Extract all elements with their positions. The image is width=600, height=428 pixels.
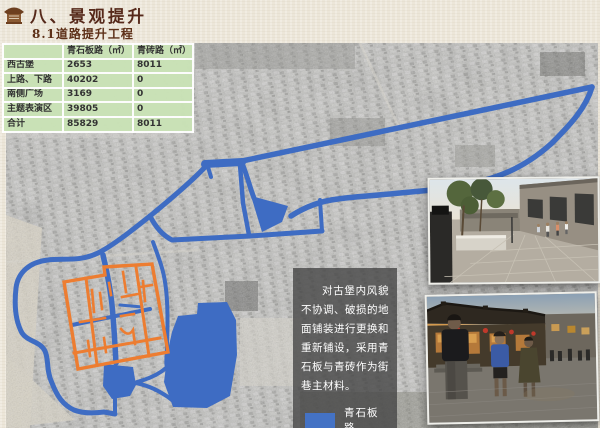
row-label: 合计: [3, 117, 63, 132]
cell-stone: 85829: [63, 117, 133, 132]
table-row: 西古堡 2653 8011: [3, 59, 193, 74]
cell-brick: 0: [133, 73, 193, 88]
table-header-row: 青石板路（㎡） 青砖路（㎡）: [3, 44, 193, 59]
cell-stone: 2653: [63, 59, 133, 74]
cell-brick: 8011: [133, 59, 193, 74]
map-legend: 青石板路 青砖路: [301, 405, 389, 428]
col-header-stone: 青石板路（㎡）: [63, 44, 133, 59]
col-header-brick: 青砖路（㎡）: [133, 44, 193, 59]
legend-item-stone: 青石板路: [305, 405, 389, 428]
cell-brick: 8011: [133, 117, 193, 132]
table-total-row: 合计 85829 8011: [3, 117, 193, 132]
cell-stone: 39805: [63, 102, 133, 117]
legend-label: 青石板路: [344, 405, 389, 428]
note-box: 对古堡内风貌不协调、破损的地面铺装进行更换和重新铺设，采用青石板与青砖作为街巷主…: [293, 268, 397, 428]
pavement-quantity-table: 青石板路（㎡） 青砖路（㎡） 西古堡 2653 8011 上路、下路 40202…: [2, 43, 194, 133]
photo-renovated-street-day: [428, 176, 600, 284]
cell-brick: 0: [133, 88, 193, 103]
row-label: 上路、下路: [3, 73, 63, 88]
table-corner-cell: [3, 44, 63, 59]
page-subtitle: 8.1道路提升工程: [32, 25, 332, 42]
page-title: 八、景观提升: [30, 3, 330, 27]
pavilion-stamp-icon: [3, 5, 25, 25]
note-text: 对古堡内风貌不协调、破损的地面铺装进行更换和重新铺设，采用青石板与青砖作为街巷主…: [301, 282, 389, 396]
stone-route-swatch: [305, 413, 335, 428]
row-label: 主题表演区: [3, 102, 63, 117]
row-label: 西古堡: [3, 59, 63, 74]
cell-brick: 0: [133, 102, 193, 117]
photo-street-dusk: [425, 291, 600, 425]
table-row: 南侧广场 3169 0: [3, 88, 193, 103]
cell-stone: 40202: [63, 73, 133, 88]
row-label: 南侧广场: [3, 88, 63, 103]
table-row: 上路、下路 40202 0: [3, 73, 193, 88]
cell-stone: 3169: [63, 88, 133, 103]
table-row: 主题表演区 39805 0: [3, 102, 193, 117]
slide: 八、景观提升 8.1道路提升工程 青石板路（㎡） 青砖路（㎡） 西古堡 2653…: [0, 0, 600, 428]
